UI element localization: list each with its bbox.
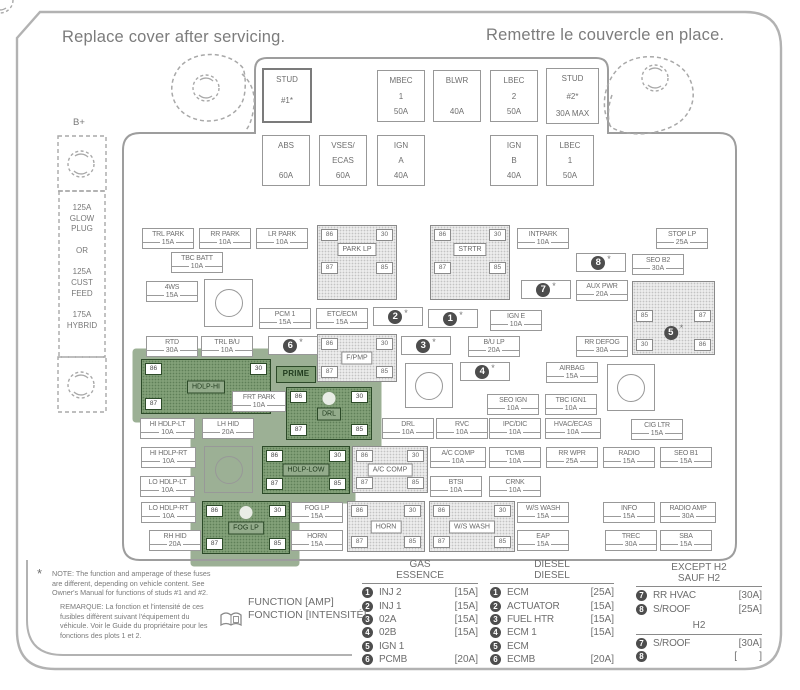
legend-row: 8[ ] [636,650,762,663]
fuse-frt-park: FRT PARK10A [232,391,286,412]
pin-85: 85 [376,262,393,274]
fuse-trec: TREC30A [605,530,657,551]
cable-line: GLOW [59,214,105,225]
cable-line: 125A [59,203,105,214]
pin-86: 86 [351,505,368,517]
fuse-lo-hdlp-rt: LO HDLP-RT10A [141,502,196,523]
fuse-btsi: BTSI10A [430,476,482,497]
relay-label: A/C COMP [368,463,413,476]
pin-30: 30 [489,229,506,241]
fuse-radio: RADIO15A [603,447,655,468]
legend-row: 402B[15A] [362,626,478,639]
relay-vent-dot [239,505,254,520]
relay-label: FOG LP [228,521,264,534]
maxi-fuse-lbec1: LBEC150A [546,135,594,186]
owners-manual-icon [221,613,241,625]
pin-87: 87 [356,477,373,489]
pin-85: 85 [489,262,506,274]
fuse-stop-lp: STOP LP25A [656,228,708,249]
pin-30: 30 [329,450,346,462]
legend-diesel: DIESELDIESEL 1ECM[25A] 2ACTUATOR[15A] 3F… [490,560,614,666]
pin-87: 87 [433,536,450,548]
maxi-fuse-stud1: STUD#1* [262,68,312,123]
fuse-circle-8: 8* [576,253,626,272]
relay-horn: 86 30 HORN 87 85 [347,501,425,552]
relay-hdlp-low: 86 30 HDLP-LOW 87 85 [262,446,350,494]
legend-h2: H2 7S/ROOF[30A] 8[ ] [636,621,762,663]
maxi-fuse-blwr: BLWR40A [433,70,481,122]
legend-h2-title: H2 [636,621,762,632]
fuse-rr-park: RR PARK10A [199,228,251,249]
relay-vent-dot [322,391,337,406]
relay-ws-wash: 86 30 W/S WASH 87 85 [429,501,515,552]
fuse-circle-7: 7* [521,280,571,299]
fuse-circle-6: 6* [268,336,318,355]
legend-row: 6ECMB[20A] [490,653,614,666]
pin-87: 87 [206,538,223,550]
legend-row: 2INJ 1[15A] [362,599,478,612]
legend-row: 4ECM 1[15A] [490,626,614,639]
pin-87: 87 [321,262,338,274]
legend-row: 8S/ROOF[25A] [636,602,762,615]
fuse-radio-amp: RADIO AMP30A [660,502,716,523]
battery-positive-label: B+ [73,117,85,128]
pin-85: 85 [494,536,511,548]
fuse-rh-hid: RH HID20A [149,530,201,551]
fuse-ign-e: IGN E10A [490,310,542,331]
legend-row: 302A[15A] [362,613,478,626]
fuse-rr-defog: RR DEFOG30A [576,336,628,357]
relay-label: HORN [371,520,402,533]
legend-gas-title-en: GAS [362,560,478,571]
pin-85: 85 [404,536,421,548]
fuse-box-diagram: Replace cover after servicing. Remettre … [0,0,800,690]
note-french: REMARQUE: La fonction et l'intensité de … [60,602,212,641]
pin-86: 86 [266,450,283,462]
relay-fog-lp: 86 30 FOG LP 87 85 [202,501,290,554]
pin-86: 86 [694,339,711,351]
pin-30: 30 [404,505,421,517]
pin-85: 85 [269,538,286,550]
pin-87: 87 [321,366,338,378]
pin-87: 87 [694,310,711,322]
legend-diesel-title-en: DIESEL [490,560,614,571]
fuse-etc-ecm: ETC/ECM15A [316,308,368,329]
legend-row: 7RR HVAC[30A] [636,589,762,602]
circuit-breaker [204,446,253,493]
pin-85: 85 [407,477,424,489]
cable-line: 125A [59,267,105,278]
relay-f-pmp: 86 30 F/PMP 87 85 [317,334,397,382]
note-asterisk: * [37,566,42,581]
relay-park-lp: 86 30 PARK LP 87 85 [317,225,397,300]
fuse-airbag: AIRBAG15A [546,362,598,383]
fuse-aux-pwr: AUX PWR20A [576,280,628,301]
pin-30: 30 [351,391,368,403]
header-english: Replace cover after servicing. [62,28,285,47]
pin-86: 86 [145,363,162,375]
pin-86: 86 [321,338,338,350]
fuse-drl: DRL10A [382,418,434,439]
fuse-eap: EAP15A [517,530,569,551]
fuse-seo-ign: SEO IGN10A [487,394,539,415]
pin-30: 30 [407,450,424,462]
pin-87: 87 [145,398,162,410]
fuse-lr-park: LR PARK10A [256,228,308,249]
mounting-hole-left [172,55,254,131]
fuse-info: INFO15A [603,502,655,523]
header-french: Remettre le couvercle en place. [486,26,724,45]
fuse-lo-hdlp-lt: LO HDLP-LT10A [140,476,195,497]
maxi-fuse-abs: ABS60A [262,135,310,186]
pin-86: 86 [433,505,450,517]
pin-30: 30 [269,505,286,517]
fuse-tbc-batt: TBC BATT10A [171,252,223,273]
fuse-hi-hdlp-lt: HI HDLP-LT10A [140,418,195,439]
fuse-hvac-ecas: HVAC/ECAS10A [545,418,601,439]
pin-30: 30 [250,363,267,375]
fuse-bu-lp: B/U LP20A [468,336,520,357]
fuse-ac-comp: A/C COMP10A [430,447,486,468]
relay-label: HDLP-LOW [283,464,330,477]
relay-5-badge: 5* [664,322,684,340]
pin-87: 87 [351,536,368,548]
fuse-tbc-ign1: TBC IGN110A [545,394,597,415]
relay-label: STRTR [453,243,486,256]
fuse-circle-2: 2* [373,307,423,326]
fuse-circle-3: 3* [401,336,451,355]
legend-row: 3FUEL HTR[15A] [490,613,614,626]
battery-cable-rating: 125A GLOW PLUG OR 125A CUST FEED 175A HY… [59,203,105,331]
fuse-4ws: 4WS15A [146,281,198,302]
cable-line: PLUG [59,224,105,235]
legend-row: 2ACTUATOR[15A] [490,599,614,612]
maxi-fuse-lbec2: LBEC250A [490,70,538,122]
relay-label: PARK LP [337,243,376,256]
pin-85: 85 [351,424,368,436]
legend-row: 7S/ROOF[30A] [636,637,762,650]
cable-line: FEED [59,289,105,300]
relay-label: W/S WASH [449,520,495,533]
fuse-lh-hid: LH HID20A [202,418,254,439]
pin-86: 86 [290,391,307,403]
cable-line: OR [59,246,105,257]
legend-gas: GASESSENCE 1INJ 2[15A] 2INJ 1[15A] 302A[… [362,560,478,666]
bolt-icon [0,0,13,13]
pin-85: 85 [636,310,653,322]
function-amp-label: FUNCTION [AMP] FONCTION [INTENSITÉ] [248,596,366,622]
fuse-sba: SBA15A [660,530,712,551]
fuse-trl-bu: TRL B/U10A [201,336,253,357]
pin-86: 86 [434,229,451,241]
pin-86: 86 [356,450,373,462]
fuse-circle-1: 1* [428,309,478,328]
pin-87: 87 [434,262,451,274]
pin-87: 87 [266,478,283,490]
fuse-rr-wpr: RR WPR25A [546,447,598,468]
pin-30: 30 [494,505,511,517]
circuit-breaker [607,364,655,411]
legend-except-title-fr: SAUF H2 [636,574,762,585]
mounting-hole-right [604,57,693,134]
legend-except-h2: EXCEPT H2SAUF H2 7RR HVAC[30A] 8S/ROOF[2… [636,563,762,616]
relay-label: F/PMP [341,352,372,365]
pin-86: 86 [321,229,338,241]
maxi-fuse-ign-b: IGNB40A [490,135,538,186]
cable-line: 175A [59,310,105,321]
fuse-ws-wash: W/S WASH15A [517,502,569,523]
legend-row: 5ECM [490,640,614,653]
pin-85: 85 [376,366,393,378]
maxi-fuse-mbec1: MBEC150A [377,70,425,122]
fuse-intpark: INTPARK10A [517,228,569,249]
fuse-trl-park: TRL PARK15A [142,228,194,249]
fuse-rtd: RTD30A [146,336,198,357]
relay-5: 85 87 5* 30 86 [632,281,715,355]
relay-drl: 86 30 DRL 87 85 [286,387,372,440]
circuit-breaker [405,363,453,408]
maxi-fuse-ign-a: IGNA40A [377,135,425,186]
legend-gas-title-fr: ESSENCE [362,571,478,582]
cable-line: CUST [59,278,105,289]
fuse-hi-hdlp-rt: HI HDLP-RT10A [141,447,196,468]
pin-87: 87 [290,424,307,436]
legend-row: 1INJ 2[15A] [362,586,478,599]
maxi-fuse-stud2: STUD#2*30A MAX [546,68,599,124]
pin-30: 30 [376,229,393,241]
fuse-cig-ltr: CIG LTR15A [631,419,683,440]
legend-row: 5IGN 1 [362,640,478,653]
legend-row: 1ECM[25A] [490,586,614,599]
fuse-horn: HORN15A [291,530,343,551]
fuse-ipc-dic: IPC/DIC10A [489,418,541,439]
pin-85: 85 [329,478,346,490]
fuse-pcm-1: PCM 115A [259,308,311,329]
fuse-circle-4: 4* [460,362,510,381]
legend-except-title-en: EXCEPT H2 [636,563,762,574]
maxi-fuse-vses-ecas: VSES/ECAS60A [319,135,367,186]
fuse-tcmb: TCMB10A [489,447,541,468]
note-english: NOTE: The function and amperage of these… [52,569,217,598]
pin-30: 30 [636,339,653,351]
cable-line: HYBRID [59,321,105,332]
legend-row: 6PCMB[20A] [362,653,478,666]
circuit-breaker [204,279,253,327]
legend-diesel-title-fr: DIESEL [490,571,614,582]
fuse-crnk: CRNK10A [489,476,541,497]
prime-label: PRIME [276,366,316,383]
fuse-rvc: RVC10A [436,418,488,439]
fuse-fog-lp: FOG LP15A [291,502,343,523]
fuse-seo-b2: SEO B230A [632,254,684,275]
fuse-seo-b1: SEO B115A [660,447,712,468]
relay-strtr: 86 30 STRTR 87 85 [430,225,510,300]
relay-ac-comp: 86 30 A/C COMP 87 85 [352,446,428,493]
relay-label: HDLP-HI [187,380,225,393]
pin-86: 86 [206,505,223,517]
relay-label: DRL [317,407,341,420]
pin-30: 30 [376,338,393,350]
